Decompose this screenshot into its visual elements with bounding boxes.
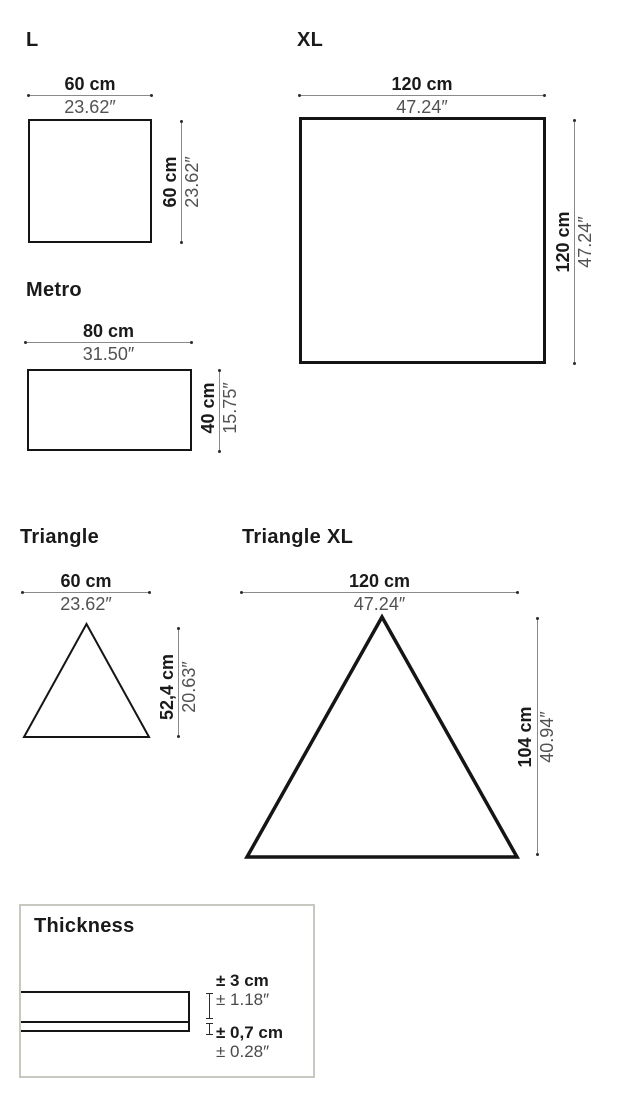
thickness-slab-side-view xyxy=(21,991,190,1032)
panel-triangle-width-dimension: 60 cm 23.62″ xyxy=(22,572,150,613)
thickness-felt-layer-line xyxy=(21,1021,188,1023)
panel-metro-width-dimension: 80 cm 31.50″ xyxy=(25,322,192,363)
panel-metro-height-cm-label: 40 cm xyxy=(199,382,217,433)
panel-xl-square-shape xyxy=(299,117,546,364)
panel-triangle-height-cm-label: 52,4 cm xyxy=(158,654,176,720)
panel-triangle-xl-shape xyxy=(243,613,521,861)
panel-metro-width-inch-label: 31.50″ xyxy=(25,345,192,363)
panel-triangle-height-inch-label: 20.63″ xyxy=(180,661,198,712)
panel-xl-height-inch-label: 47.24″ xyxy=(576,216,594,267)
panel-metro-title: Metro xyxy=(26,280,82,301)
panel-l-square-shape xyxy=(28,119,152,243)
panel-triangle-xl-height-inch-label: 40.94″ xyxy=(538,711,556,762)
thickness-total-dimension-line xyxy=(209,993,210,1019)
panel-triangle-xl-width-dimension: 120 cm 47.24″ xyxy=(241,572,518,613)
panel-triangle-width-dimension-line xyxy=(22,592,150,593)
dimensions-spec-sheet: L 60 cm 23.62″ 60 cm 23.62″ XL 120 cm 47… xyxy=(0,0,619,1107)
panel-l-height-cm-label: 60 cm xyxy=(161,156,179,207)
panel-metro-width-dimension-line xyxy=(25,342,192,343)
panel-metro-width-cm-label: 80 cm xyxy=(25,322,192,340)
panel-metro-rectangle-shape xyxy=(27,369,192,451)
panel-triangle-xl-title: Triangle XL xyxy=(242,527,353,548)
thickness-total-inch-label: ± 1.18″ xyxy=(216,991,269,1009)
thickness-felt-dimension-line xyxy=(209,1023,210,1035)
panel-l-width-cm-label: 60 cm xyxy=(28,75,152,93)
panel-triangle-shape xyxy=(21,622,151,739)
panel-triangle-xl-width-cm-label: 120 cm xyxy=(241,572,518,590)
panel-l-width-dimension: 60 cm 23.62″ xyxy=(28,75,152,116)
thickness-title: Thickness xyxy=(34,916,135,937)
panel-triangle-xl-height-cm-label: 104 cm xyxy=(516,706,534,767)
panel-metro-height-inch-label: 15.75″ xyxy=(221,382,239,433)
panel-xl-width-dimension-line xyxy=(299,95,545,96)
panel-triangle-xl-width-inch-label: 47.24″ xyxy=(241,595,518,613)
panel-triangle-xl-width-dimension-line xyxy=(241,592,518,593)
thickness-felt-inch-label: ± 0.28″ xyxy=(216,1043,269,1061)
panel-l-height-inch-label: 23.62″ xyxy=(183,156,201,207)
panel-triangle-title: Triangle xyxy=(20,527,99,548)
panel-triangle-width-cm-label: 60 cm xyxy=(22,572,150,590)
panel-xl-height-cm-label: 120 cm xyxy=(554,211,572,272)
panel-l-width-inch-label: 23.62″ xyxy=(28,98,152,116)
panel-triangle-width-inch-label: 23.62″ xyxy=(22,595,150,613)
thickness-felt-cm-label: ± 0,7 cm xyxy=(216,1024,283,1042)
panel-xl-title: XL xyxy=(297,30,323,51)
panel-xl-width-dimension: 120 cm 47.24″ xyxy=(299,75,545,116)
panel-xl-width-inch-label: 47.24″ xyxy=(299,98,545,116)
panel-l-title: L xyxy=(26,30,39,51)
panel-xl-width-cm-label: 120 cm xyxy=(299,75,545,93)
panel-l-width-dimension-line xyxy=(28,95,152,96)
thickness-total-cm-label: ± 3 cm xyxy=(216,972,269,990)
